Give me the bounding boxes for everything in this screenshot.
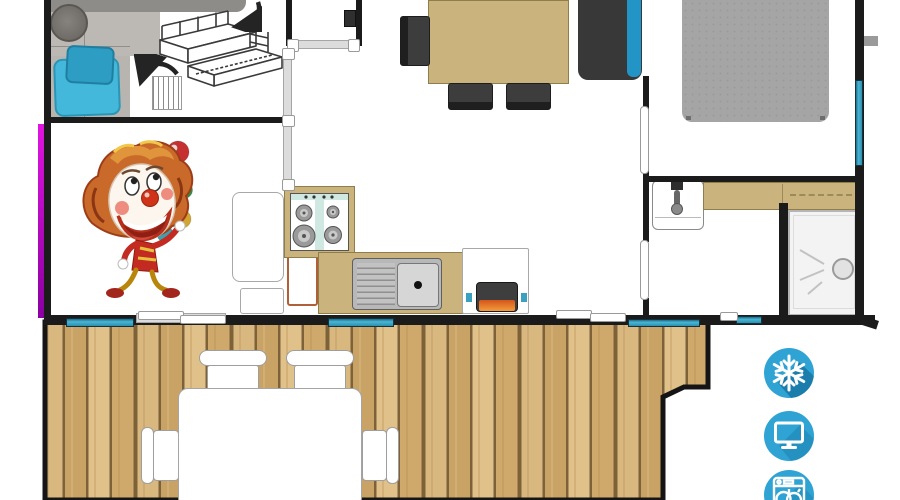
door-handle <box>282 115 295 127</box>
counter-detail <box>790 194 852 196</box>
window <box>628 319 700 327</box>
sliding-door-panel <box>590 313 626 322</box>
bed-foot <box>686 116 691 120</box>
heater-fitting <box>521 293 527 302</box>
outdoor-chair-seat <box>362 430 387 481</box>
wall-bathroom-left <box>643 182 649 242</box>
gas-hob <box>290 193 349 251</box>
door-end-cap <box>348 39 360 52</box>
bed-foot <box>820 116 825 120</box>
kitchen-cabinet-door <box>287 254 318 306</box>
bathroom-door <box>640 240 649 300</box>
dishwasher-icon <box>763 469 815 500</box>
wall-bedroom1 <box>44 117 291 123</box>
kitchen-cabinet <box>240 288 284 314</box>
window <box>66 318 134 327</box>
wall-bathroom-top <box>643 176 863 182</box>
sliding-door-panel <box>720 312 738 321</box>
sliding-door-panel <box>138 311 184 320</box>
washbasin-edge <box>655 217 701 218</box>
sliding-door-panel <box>556 310 592 319</box>
sliding-door-panel <box>180 315 226 324</box>
outdoor-chair-seat <box>153 430 179 481</box>
outdoor-chair-backrest <box>286 350 354 366</box>
wall-stub <box>864 36 878 46</box>
interior-sliding-door <box>289 40 357 49</box>
shower-spray-marks <box>794 232 838 302</box>
fold-arrow <box>228 0 262 32</box>
blue-cushion-small <box>65 45 115 85</box>
wall-left <box>44 0 51 325</box>
dining-chair <box>506 83 551 110</box>
heater-flame <box>479 300 515 311</box>
heater-fitting <box>466 293 472 302</box>
basin-tap <box>671 181 683 190</box>
interior-sliding-door <box>283 50 292 188</box>
outdoor-chair-backrest <box>386 427 399 484</box>
shower-cabin <box>788 210 862 316</box>
sofa-blue-cushion <box>627 0 641 77</box>
floor-plan-canvas <box>0 0 900 500</box>
sink-drainer <box>357 263 395 305</box>
sink-drain <box>414 281 422 289</box>
dining-table <box>428 0 569 84</box>
door-end-cap <box>282 179 295 191</box>
wall-bedroom2 <box>643 76 649 110</box>
dining-chair <box>400 16 430 66</box>
snowflake-icon <box>763 347 815 399</box>
outdoor-chair-backrest <box>199 350 267 366</box>
dining-chair <box>448 83 493 110</box>
wall-corner-foot <box>859 315 879 329</box>
window <box>736 316 762 324</box>
wall-shower <box>779 203 788 320</box>
kitchen-cabinet <box>232 192 284 282</box>
door-end-cap <box>282 48 295 60</box>
stool <box>50 4 88 42</box>
bedroom2-door <box>640 106 649 174</box>
outdoor-table <box>178 388 362 500</box>
window <box>328 318 394 327</box>
fold-arrow <box>134 54 180 94</box>
basin-tap-base <box>671 203 683 215</box>
tv-icon <box>763 410 815 462</box>
kitchen-sink <box>352 258 442 310</box>
window <box>855 80 863 166</box>
wall-tv <box>344 10 356 27</box>
juggling-clown-illustration <box>70 128 230 308</box>
double-bed <box>682 0 829 122</box>
